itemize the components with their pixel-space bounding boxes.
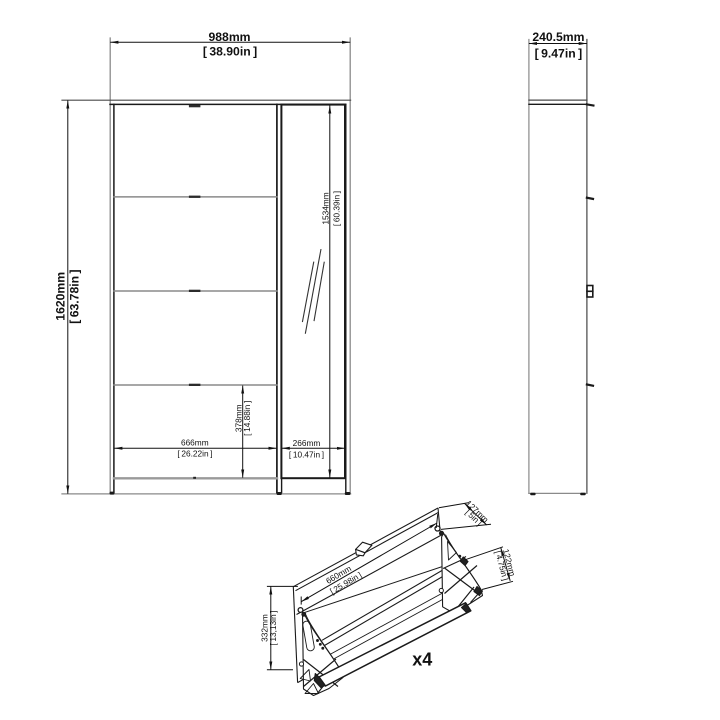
svg-text:[ 63.78in ]: [ 63.78in ]	[68, 269, 82, 323]
svg-text:1620mm: 1620mm	[53, 272, 67, 321]
svg-text:[ 9.47in ]: [ 9.47in ]	[535, 47, 583, 61]
svg-text:988mm: 988mm	[208, 30, 250, 44]
svg-text:[ 10.47in ]: [ 10.47in ]	[289, 450, 324, 460]
svg-text:x4: x4	[412, 650, 432, 670]
svg-text:[ 26.22in ]: [ 26.22in ]	[177, 449, 212, 459]
svg-text:666mm: 666mm	[181, 438, 209, 448]
svg-text:[ 38.90in ]: [ 38.90in ]	[203, 44, 257, 58]
svg-text:1534mm: 1534mm	[321, 192, 331, 224]
svg-text:266mm: 266mm	[293, 438, 321, 448]
svg-text:[ 60.39in ]: [ 60.39in ]	[331, 191, 341, 226]
svg-text:[ 14.88in ]: [ 14.88in ]	[242, 401, 252, 436]
svg-text:240.5mm: 240.5mm	[532, 30, 584, 44]
svg-text:[ 13,13in ]: [ 13,13in ]	[268, 610, 278, 645]
